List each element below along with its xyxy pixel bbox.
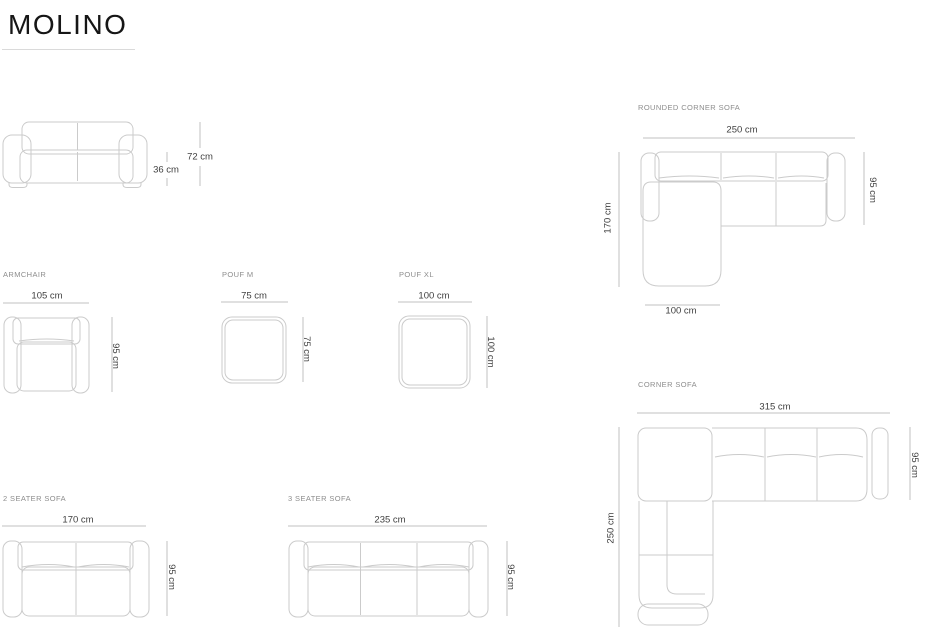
dim-corner-width: 315 cm (759, 402, 790, 412)
pouf-xl-outline (399, 316, 470, 388)
dim-corner-total-depth: 250 cm (606, 512, 616, 543)
three-seater-outline (289, 541, 488, 617)
two-seater-outline (3, 541, 149, 617)
armchair-outline (4, 317, 89, 393)
dim-rounded-corner-total-depth: 170 cm (603, 202, 613, 233)
dim-three-seater-depth: 95 cm (505, 564, 515, 590)
label-corner-sofa: CORNER SOFA (638, 381, 697, 389)
figure-three-seater (285, 490, 520, 625)
dim-corner-depth: 95 cm (909, 452, 919, 478)
figure-corner-sofa (595, 395, 930, 630)
figure-two-seater (0, 490, 185, 625)
dim-armchair-width: 105 cm (31, 291, 62, 301)
three-seater-drawing (285, 490, 520, 625)
dim-front-seat-height: 36 cm (153, 165, 179, 175)
dim-two-seater-width: 170 cm (62, 515, 93, 525)
dim-front-total-height: 72 cm (187, 152, 213, 162)
two-seater-dim-lines (2, 526, 167, 616)
armchair-dim-lines (3, 303, 112, 392)
dim-rounded-corner-depth: 95 cm (867, 177, 877, 203)
dim-pouf-xl-width: 100 cm (418, 291, 449, 301)
molino-dimension-sheet: MOLINO 36 cm 72 cm ROUNDED CORNER SOFA (0, 0, 930, 630)
pouf-m-dim-lines (221, 302, 303, 382)
sofa-front-view-drawing (0, 110, 220, 215)
armchair-drawing (0, 265, 130, 400)
corner-sofa-drawing (595, 395, 930, 630)
rounded-corner-sofa-drawing (595, 95, 930, 320)
dim-rounded-corner-width: 250 cm (726, 125, 757, 135)
dim-armchair-depth: 95 cm (110, 343, 120, 369)
figure-sofa-front-view (0, 110, 220, 215)
pouf-m-drawing (215, 265, 325, 400)
figure-rounded-corner-sofa (595, 95, 930, 320)
figure-pouf-xl (390, 265, 505, 400)
pouf-m-outline (222, 317, 286, 383)
pouf-xl-dim-lines (398, 302, 487, 388)
rounded-corner-sofa-outline (641, 152, 845, 286)
corner-sofa-outline (638, 428, 888, 625)
dim-pouf-xl-depth: 100 cm (485, 336, 495, 367)
dim-pouf-m-width: 75 cm (241, 291, 267, 301)
sofa-front-outline (3, 122, 147, 188)
dim-pouf-m-depth: 75 cm (301, 336, 311, 362)
dim-rounded-corner-chaise-width: 100 cm (665, 306, 696, 316)
pouf-xl-drawing (390, 265, 505, 400)
dim-three-seater-width: 235 cm (374, 515, 405, 525)
page-title: MOLINO (8, 11, 127, 39)
dim-two-seater-depth: 95 cm (166, 564, 176, 590)
title-underline (2, 49, 135, 50)
three-seater-dim-lines (288, 526, 507, 616)
figure-pouf-m (215, 265, 325, 400)
figure-armchair (0, 265, 130, 400)
two-seater-drawing (0, 490, 185, 625)
